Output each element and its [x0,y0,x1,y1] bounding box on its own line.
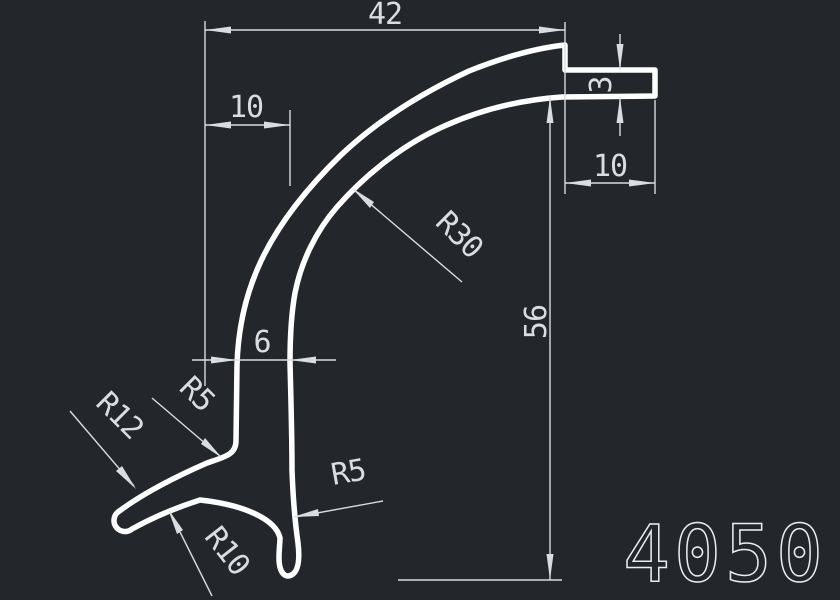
cad-drawing: 42 10 3 10 56 [0,0,840,600]
part-number: 4050 [623,510,827,600]
cad-canvas: 42 10 3 10 56 [0,0,840,600]
dim-6-label: 6 [253,325,270,360]
dim-42-label: 42 [368,0,402,32]
dim-10-right-label: 10 [593,149,627,184]
dim-3-label: 3 [584,76,619,93]
dim-56-label: 56 [519,305,554,339]
dim-10-left-label: 10 [229,90,263,125]
r5-lower-label: R5 [328,453,368,493]
